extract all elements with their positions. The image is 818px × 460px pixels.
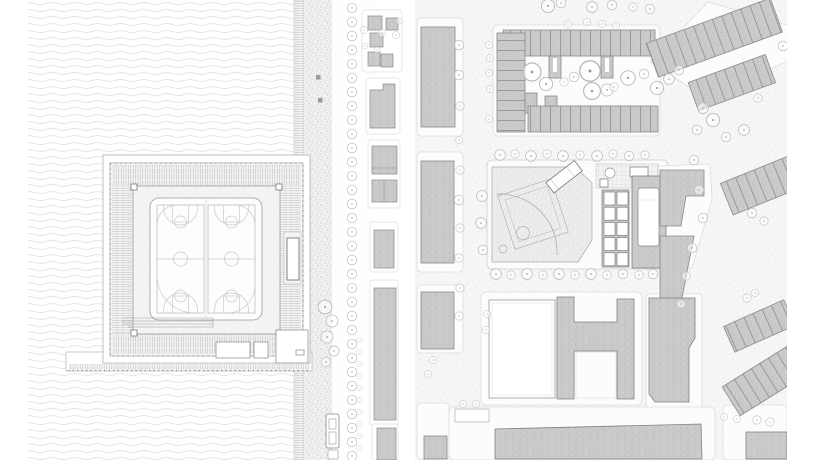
tree-icon <box>347 157 357 167</box>
tree-icon <box>347 283 357 293</box>
building <box>377 428 396 460</box>
tree-icon <box>560 78 568 86</box>
tree-icon <box>459 400 466 407</box>
tree-icon <box>739 125 750 136</box>
tree-icon <box>482 326 489 333</box>
building <box>374 230 394 268</box>
tree-icon <box>318 300 332 314</box>
tree-icon <box>347 185 357 195</box>
tram-stop <box>326 414 339 459</box>
right-panel-urban-context-plan <box>415 0 806 460</box>
tree-icon <box>664 74 675 85</box>
tree-icon <box>698 213 708 223</box>
tree-icon <box>347 451 357 460</box>
tree-icon <box>507 271 515 279</box>
tree-icon <box>454 195 464 205</box>
tree-icon <box>580 61 600 81</box>
tree-icon <box>485 41 492 48</box>
tree-icon <box>360 26 367 33</box>
building <box>424 436 447 459</box>
tree-icon <box>356 337 361 342</box>
annex-room <box>254 342 268 358</box>
tree-icon <box>347 129 357 139</box>
building <box>421 161 454 263</box>
tree-icon <box>609 150 617 158</box>
tree-icon <box>347 353 357 363</box>
building <box>495 424 702 459</box>
tree-icon <box>454 70 464 80</box>
white-building <box>455 409 489 422</box>
tree-icon <box>456 224 464 232</box>
tree-icon <box>607 0 617 10</box>
tree-icon <box>694 185 704 195</box>
tree-icon <box>347 423 357 433</box>
stair-slot <box>553 58 557 72</box>
park-block <box>492 161 666 268</box>
tree-icon <box>347 381 357 391</box>
tree-icon <box>396 18 402 24</box>
tree-icon <box>347 45 357 55</box>
dock-tick-band <box>69 364 309 370</box>
tree-icon <box>347 143 357 153</box>
tree-icon <box>645 4 655 14</box>
tree-icon <box>347 325 357 335</box>
play-court <box>604 238 615 251</box>
tree-icon <box>347 311 357 321</box>
sports-hall <box>110 163 308 363</box>
tree-icon <box>541 0 554 13</box>
tree-icon <box>760 217 768 225</box>
white-building <box>489 300 555 398</box>
tree-icon <box>539 77 552 90</box>
tree-icon <box>511 150 519 158</box>
building <box>368 16 382 30</box>
tree-icon <box>747 208 757 218</box>
site-plan-figure: Two monochrome architectural site plans … <box>0 0 818 460</box>
tree-icon <box>641 151 649 159</box>
tree-icon <box>543 150 551 158</box>
tree-icon <box>523 63 541 81</box>
tree-icon <box>483 310 490 317</box>
play-court <box>617 222 628 235</box>
tree-icon <box>356 409 361 414</box>
building <box>372 180 397 202</box>
building <box>374 288 396 420</box>
tree-icon <box>592 151 603 162</box>
tree-icon <box>754 94 762 102</box>
building <box>372 146 397 174</box>
tree-icon <box>347 199 357 209</box>
play-court <box>604 192 615 205</box>
tree-icon <box>576 151 584 159</box>
tree-icon <box>347 87 357 97</box>
rowhouse-strip-south <box>528 106 658 132</box>
tree-icon <box>677 300 685 308</box>
tree-icon <box>692 125 702 135</box>
rowhouse-strip-north <box>503 30 655 56</box>
tree-icon <box>454 40 464 50</box>
tree-icon <box>476 218 487 229</box>
tree-icon <box>539 271 547 279</box>
tree-icon <box>456 166 464 174</box>
kiosk <box>328 450 338 459</box>
tree-icon <box>624 151 634 161</box>
play-court <box>604 222 615 235</box>
tree-icon <box>556 0 566 8</box>
building <box>421 27 455 127</box>
tree-icon <box>347 339 357 349</box>
tree-icon <box>326 315 338 327</box>
tree-icon <box>610 83 618 91</box>
bench-icon <box>318 98 323 103</box>
tree-icon <box>554 269 565 280</box>
tree-icon <box>356 349 361 354</box>
tree-icon <box>347 17 357 27</box>
swimming-pool <box>638 188 659 246</box>
tree-icon <box>455 254 463 262</box>
building <box>368 52 380 66</box>
tree-icon <box>522 269 533 280</box>
tree-icon <box>472 400 479 407</box>
tree-icon <box>720 413 727 420</box>
tree-icon <box>356 445 361 450</box>
tree-icon <box>356 397 361 402</box>
tree-icon <box>586 269 597 280</box>
tree-icon <box>743 294 751 302</box>
tree-icon <box>429 356 436 363</box>
building <box>649 298 695 402</box>
tree-icon <box>618 269 628 279</box>
tree-icon <box>698 103 709 114</box>
play-court <box>617 253 628 266</box>
annex-detail <box>296 350 304 355</box>
tree-icon <box>347 409 357 419</box>
tree-icon <box>392 31 399 38</box>
tree-icon <box>347 241 357 251</box>
tree-icon <box>583 18 590 25</box>
tree-icon <box>356 373 361 378</box>
annex-room <box>216 342 250 358</box>
tree-icon <box>378 29 385 36</box>
plaza-kiosk <box>600 179 608 187</box>
tree-icon <box>486 85 493 92</box>
tree-icon <box>347 213 357 223</box>
tree-icon <box>356 361 361 366</box>
tree-icon <box>687 243 697 253</box>
tree-icon <box>356 433 361 438</box>
corner-post <box>131 330 137 336</box>
tree-icon <box>491 269 502 280</box>
tree-icon <box>526 151 537 162</box>
tree-icon <box>639 69 649 79</box>
rowhouse-strip-west <box>497 33 525 132</box>
tree-icon <box>347 227 357 237</box>
tree-icon <box>689 155 699 165</box>
corner-post <box>276 184 282 190</box>
tree-icon <box>347 73 357 83</box>
tree-icon <box>347 297 357 307</box>
play-court <box>604 253 615 266</box>
tree-icon <box>455 312 463 320</box>
tree-icon <box>347 101 357 111</box>
tree-icon <box>648 269 658 279</box>
building <box>370 84 395 128</box>
tree-icon <box>571 271 579 279</box>
play-court <box>617 207 628 220</box>
tree-icon <box>706 113 719 126</box>
ramp-band-south <box>112 333 301 354</box>
tree-icon <box>456 102 464 110</box>
tree-icon <box>347 269 357 279</box>
ramp-band-west <box>112 186 133 333</box>
tree-icon <box>486 54 493 61</box>
tree-icon <box>347 31 357 41</box>
tree-icon <box>347 437 357 447</box>
tree-icon <box>374 47 380 53</box>
tree-icon <box>477 191 488 202</box>
tree-icon <box>598 20 605 27</box>
tree-icon <box>478 245 488 255</box>
tree-icon <box>778 41 788 51</box>
tree-icon <box>347 367 357 377</box>
tree-icon <box>569 72 579 82</box>
tree-icon <box>635 271 643 279</box>
plaza-circle <box>605 168 615 178</box>
tree-icon <box>733 415 740 422</box>
tree-icon <box>766 418 774 426</box>
bench-icon <box>316 75 321 80</box>
corner-post <box>131 184 137 190</box>
tree-icon <box>721 132 731 142</box>
tree-icon <box>603 271 611 279</box>
east-annex <box>287 238 299 280</box>
tree-icon <box>629 3 637 11</box>
tree-icon <box>347 395 357 405</box>
left-panel-waterfront-site-plan <box>28 0 402 460</box>
tree-icon <box>751 289 758 296</box>
play-court <box>617 238 628 251</box>
tree-icon <box>356 421 361 426</box>
tree-icon <box>362 43 368 49</box>
tree-icon <box>321 331 333 343</box>
building <box>381 54 393 67</box>
play-court <box>604 207 615 220</box>
tree-icon <box>650 81 663 94</box>
tree-icon <box>564 20 571 27</box>
tree-icon <box>347 3 357 13</box>
building <box>421 292 454 349</box>
tree-icon <box>424 370 431 377</box>
tree-icon <box>347 59 357 69</box>
tree-icon <box>682 272 690 280</box>
annex-room <box>276 330 308 363</box>
tree-icon <box>456 284 464 292</box>
tree-icon <box>321 357 331 367</box>
site-plan-canvas <box>0 0 818 460</box>
tree-icon <box>587 2 598 13</box>
tree-icon <box>485 115 492 122</box>
tree-icon <box>347 171 357 181</box>
ramp-band-north <box>112 165 301 186</box>
tree-icon <box>329 346 339 356</box>
tree-icon <box>612 22 619 29</box>
courtyard-wing <box>545 96 557 106</box>
building <box>746 432 787 459</box>
tree-icon <box>347 115 357 125</box>
tree-icon <box>455 136 462 143</box>
tree-icon <box>347 255 357 265</box>
tree-icon <box>485 69 492 76</box>
tree-icon <box>558 151 569 162</box>
tree-icon <box>584 83 601 100</box>
plaza-pavilion <box>630 167 648 177</box>
tree-icon <box>621 71 635 85</box>
stair-slot <box>605 58 609 72</box>
tree-icon <box>356 385 361 390</box>
tree-icon <box>495 150 506 161</box>
tree-icon <box>753 416 761 424</box>
play-court <box>617 192 628 205</box>
tree-icon <box>674 65 684 75</box>
